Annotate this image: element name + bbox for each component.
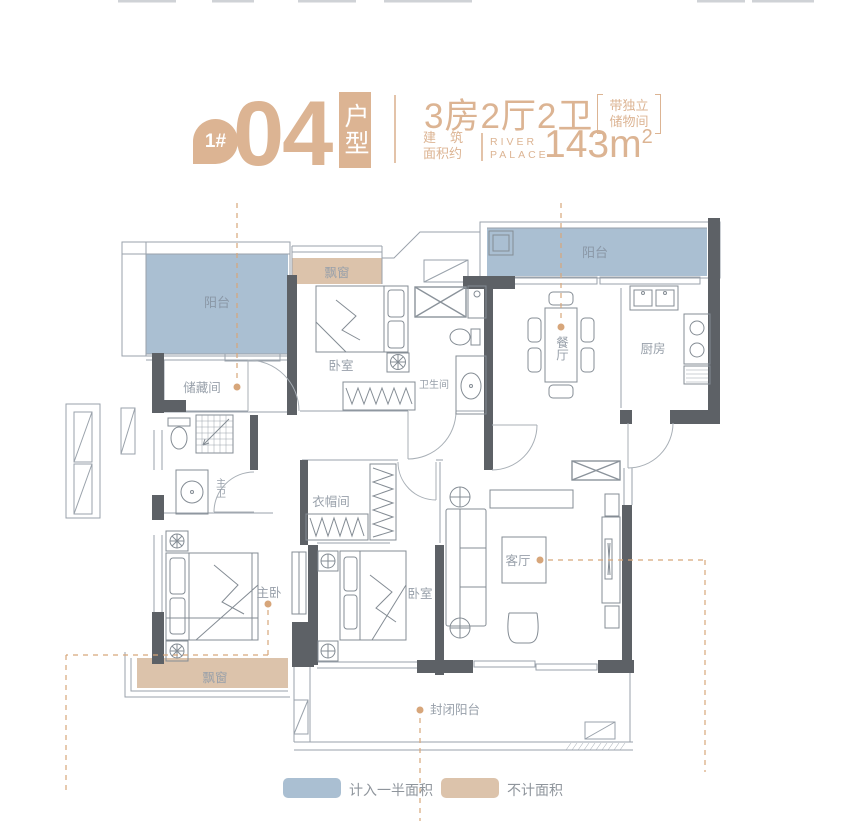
room-label-bathroom: 卫生间 (419, 378, 449, 391)
top-crop-marks (118, 0, 814, 3)
room-label-enclosed-balcony: 封闭阳台 (430, 702, 480, 717)
room-label-bay-bottom: 飘窗 (202, 671, 227, 685)
bed-bottom-bedroom (340, 551, 406, 640)
room-label-bedroom-bottom: 卧室 (407, 586, 432, 601)
wardrobe-top-bedroom (343, 382, 415, 410)
entry-cabinet (572, 461, 620, 480)
bottom-bedroom-lights (318, 551, 338, 661)
legend-excluded-label: 不计面积 (507, 780, 563, 800)
legend-excluded-swatch (441, 778, 499, 798)
room-label-bedroom-top: 卧室 (328, 358, 353, 373)
room-label-storage: 储藏间 (183, 380, 221, 395)
master-bed (166, 553, 258, 640)
room-label-master-bedroom: 主卧 (256, 586, 281, 600)
room-label-balcony-right: 阳台 (582, 245, 608, 260)
plant-top-bedroom (387, 353, 409, 372)
room-label-master-bath: 主卫 (214, 478, 226, 498)
bed-top-bedroom (316, 286, 408, 352)
bathroom-fixtures (415, 286, 486, 414)
kitchen-fixtures (630, 286, 710, 384)
living-room-furniture (446, 487, 620, 643)
room-label-bay-top: 飘窗 (324, 266, 349, 280)
master-bedroom-cabinet (292, 552, 306, 614)
room-label-cloakroom: 衣帽间 (312, 494, 350, 509)
room-label-kitchen: 厨房 (640, 341, 665, 356)
master-bath-fixtures (168, 415, 233, 514)
balcony-hatch (566, 743, 625, 750)
legend-half-area-swatch (283, 778, 341, 798)
room-label-dining: 餐厅 (554, 335, 568, 361)
room-label-living: 客厅 (505, 553, 530, 568)
room-label-balcony-left: 阳台 (204, 295, 230, 310)
legend-half-area-label: 计入一半面积 (349, 780, 433, 800)
nightstands-master (166, 531, 188, 661)
floor-plan: 阳台 阳台 飘窗 卧室 储藏间 卫生间 餐厅 厨房 主卫 衣帽间 主卧 卧室 客… (0, 0, 850, 824)
balcony-sliding-door (474, 661, 597, 670)
